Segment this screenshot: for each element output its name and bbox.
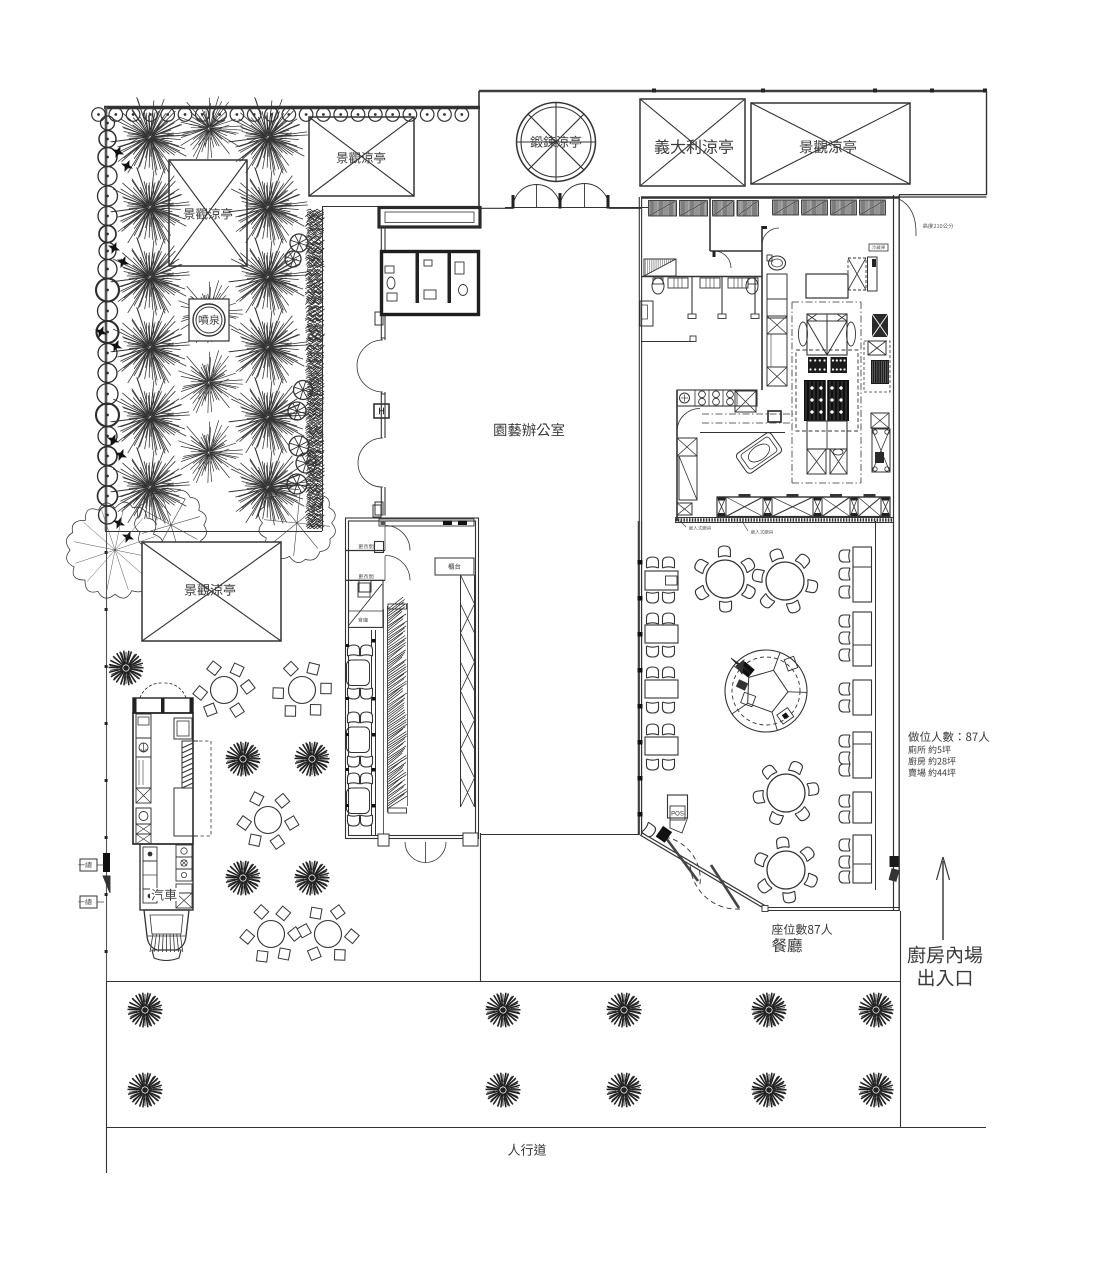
svg-text:POS: POS [671, 812, 684, 818]
